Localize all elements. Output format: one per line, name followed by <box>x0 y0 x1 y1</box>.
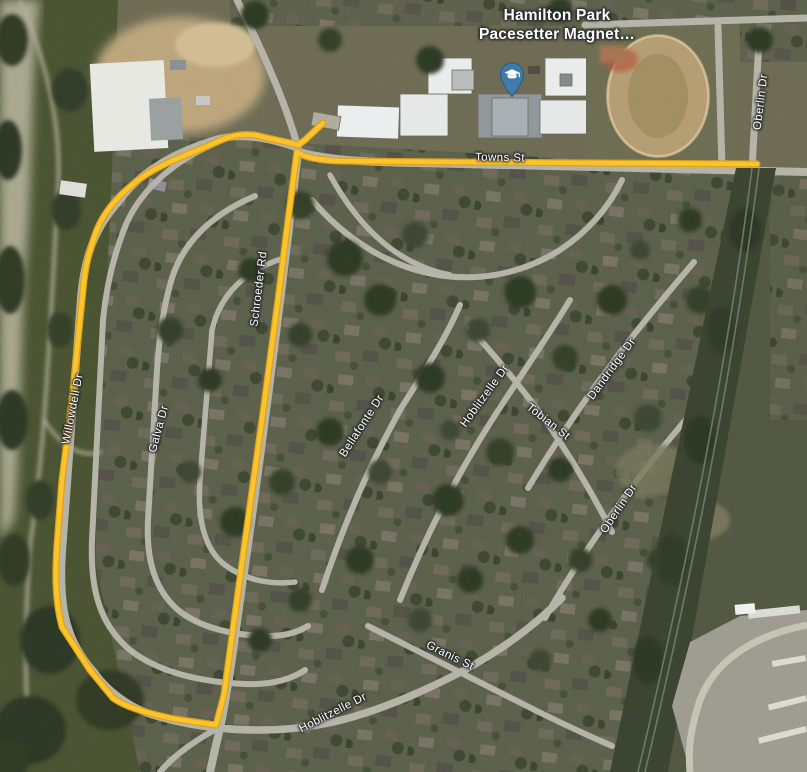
school-poi-label[interactable]: Hamilton Park Pacesetter Magnet… <box>434 6 680 45</box>
satellite-imagery <box>0 0 807 772</box>
school-poi-marker[interactable] <box>499 62 525 98</box>
noise-overlay <box>0 0 807 772</box>
poi-name-line2: Pacesetter Magnet… <box>434 25 680 44</box>
poi-name-line1: Hamilton Park <box>434 6 680 25</box>
graduation-cap-icon <box>499 62 525 98</box>
satellite-map-canvas[interactable]: Towns St Oberlin Dr Schroeder Rd Willowd… <box>0 0 807 772</box>
